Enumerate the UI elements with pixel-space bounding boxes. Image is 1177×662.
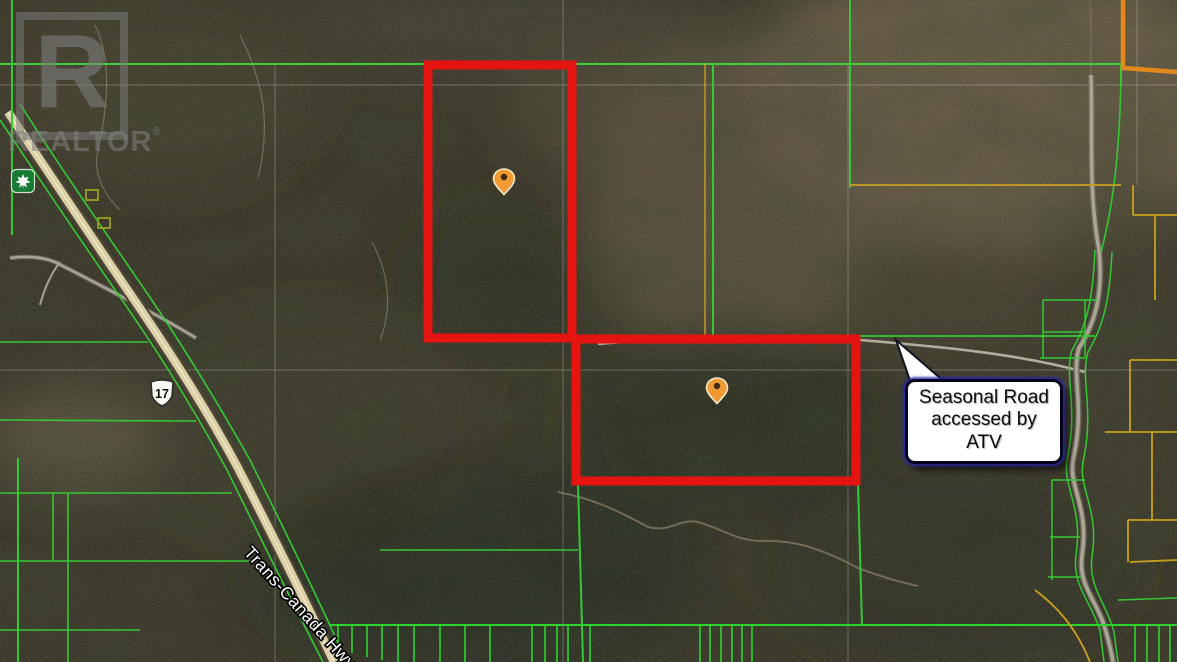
- callout-line-3: ATV: [910, 432, 1058, 454]
- highway-shield-number: 17: [155, 387, 169, 401]
- seasonal-road-callout: Seasonal Road accessed by ATV: [905, 379, 1063, 464]
- maple-leaf-icon: [12, 170, 35, 193]
- map-layers: 17 Trans-Canada Hwy: [0, 0, 1177, 662]
- callout-line-1: Seasonal Road: [910, 387, 1058, 409]
- terrain-background: [0, 0, 1177, 662]
- callout-line-2: accessed by: [910, 409, 1058, 431]
- map-canvas: 17 Trans-Canada Hwy R REALTOR® Seasonal …: [0, 0, 1177, 662]
